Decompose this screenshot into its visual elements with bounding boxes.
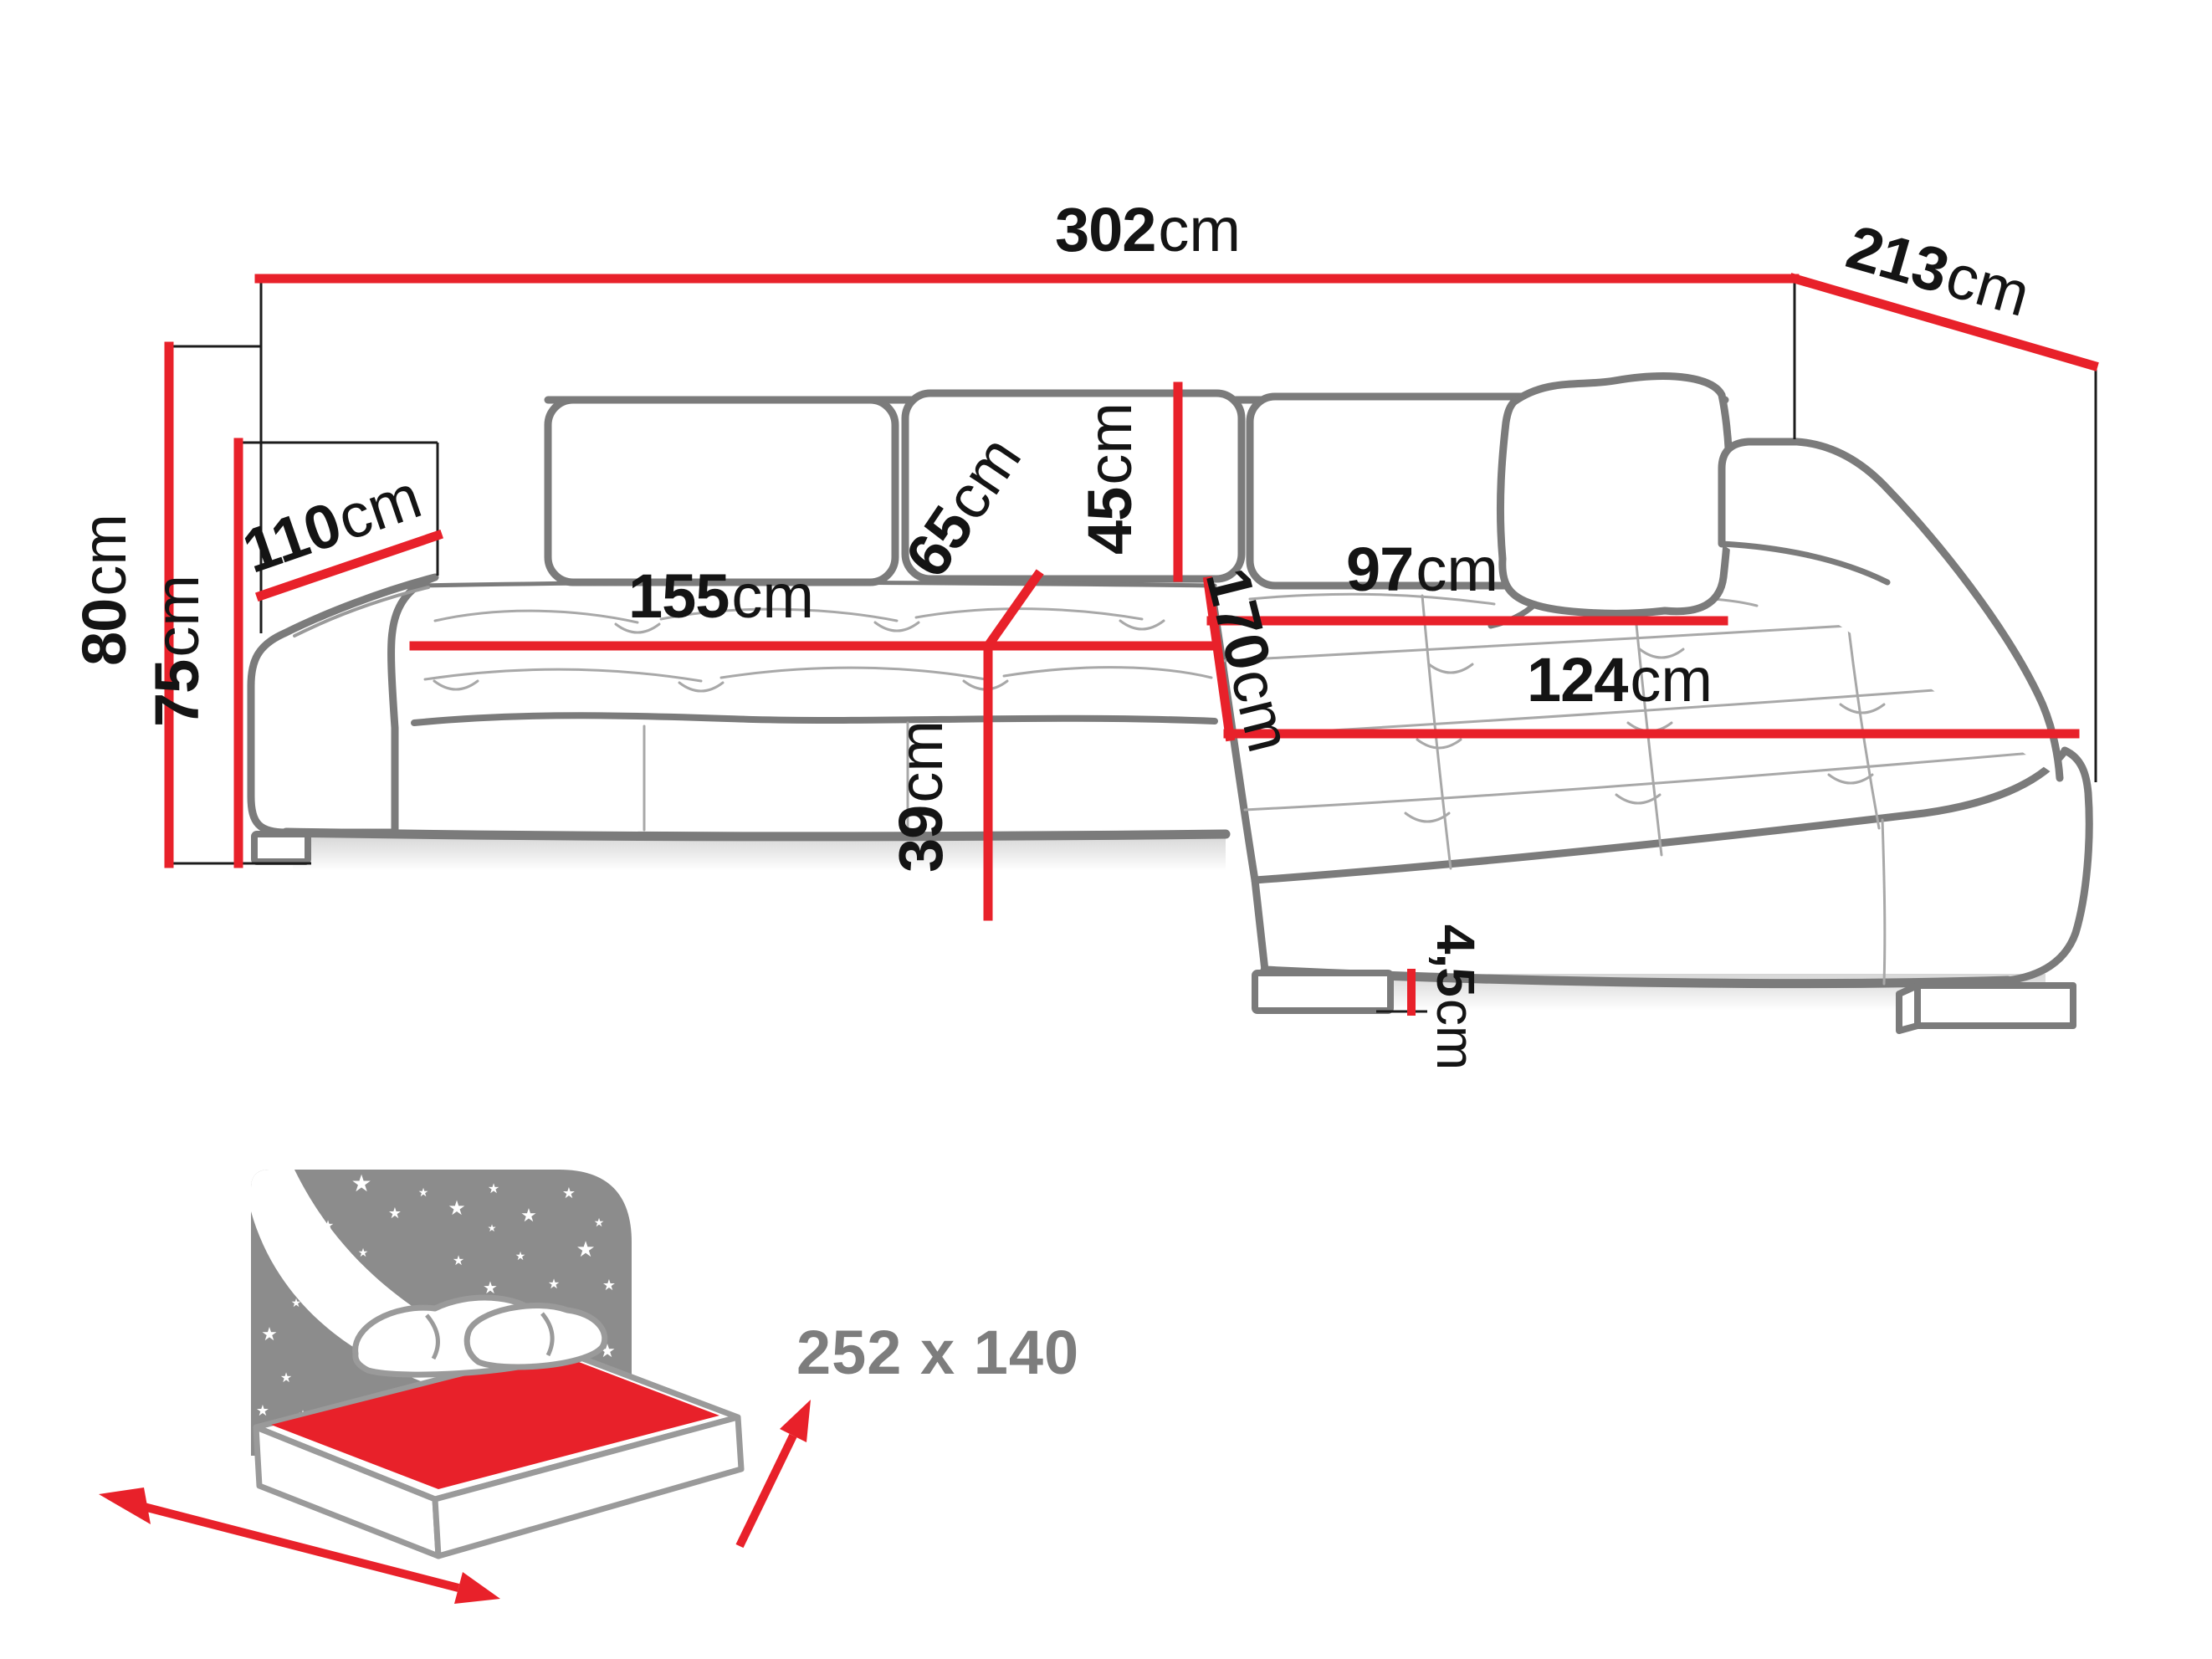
right-armrest — [1722, 442, 2060, 778]
left-leg — [254, 834, 308, 862]
dim-label-backrest-height: 45cm — [1075, 402, 1144, 555]
chaise-right-leg — [1899, 986, 2073, 1031]
back-cushion-left — [548, 400, 895, 582]
sofa-drawing — [251, 376, 2089, 1031]
svg-text:★: ★ — [261, 1324, 278, 1344]
svg-text:★: ★ — [520, 1205, 537, 1226]
dim-label-seat-height: 39cm — [886, 720, 955, 873]
svg-text:★: ★ — [602, 1277, 616, 1293]
bed-pillow-right — [467, 1305, 605, 1367]
dimension-lines — [169, 279, 2093, 1011]
svg-text:★: ★ — [280, 1371, 292, 1385]
svg-text:★: ★ — [488, 1222, 497, 1234]
chaise-front-leg — [1255, 973, 1390, 1011]
arrow-head-up — [780, 1400, 811, 1442]
seat-front-edge — [414, 715, 1215, 723]
bed-size-label: 252 x 140 — [796, 1318, 1079, 1387]
svg-text:★: ★ — [448, 1197, 466, 1220]
dimension-diagram-page: 302cm 213cm 80cm 75cm 110cm 155cm 65cm 4… — [0, 0, 2212, 1659]
dim-label-depth-right: 213cm — [1840, 212, 2037, 330]
svg-text:★: ★ — [548, 1278, 560, 1292]
dim-label-armrest-height: 75cm — [142, 575, 212, 727]
sofa-dimension-drawing: 302cm 213cm 80cm 75cm 110cm 155cm 65cm 4… — [0, 0, 2212, 1659]
dim-label-chaise-front-width: 124cm — [1527, 645, 1713, 714]
pillow — [1500, 376, 1729, 614]
dim-label-seat-width: 155cm — [628, 561, 814, 631]
svg-text:★: ★ — [453, 1254, 464, 1268]
svg-text:★: ★ — [488, 1182, 499, 1196]
svg-text:★: ★ — [351, 1170, 371, 1196]
svg-text:★: ★ — [562, 1185, 576, 1201]
dim-label-chaise-back-width: 97cm — [1346, 535, 1498, 604]
svg-text:★: ★ — [256, 1402, 269, 1419]
dim-label-height-total: 80cm — [69, 514, 139, 666]
svg-text:★: ★ — [576, 1237, 595, 1262]
sleeping-function-icon: ★★★★★★★★★★★★★★★★★★★★★★★★★★★★★★ 252 x 140 — [99, 1170, 1079, 1604]
arrow-head-right — [454, 1572, 500, 1604]
svg-text:★: ★ — [388, 1205, 402, 1221]
svg-text:★: ★ — [515, 1249, 526, 1262]
sofa-bottom-edge — [286, 832, 1226, 837]
svg-text:★: ★ — [418, 1185, 429, 1199]
dim-label-chaise-length: 170cm — [1193, 561, 1305, 759]
dim-label-width-total: 302cm — [1055, 195, 1241, 264]
svg-text:★: ★ — [358, 1246, 369, 1259]
arrow-head-left — [99, 1487, 151, 1524]
dim-line-seat-depth — [988, 576, 1037, 646]
svg-text:★: ★ — [594, 1216, 605, 1229]
